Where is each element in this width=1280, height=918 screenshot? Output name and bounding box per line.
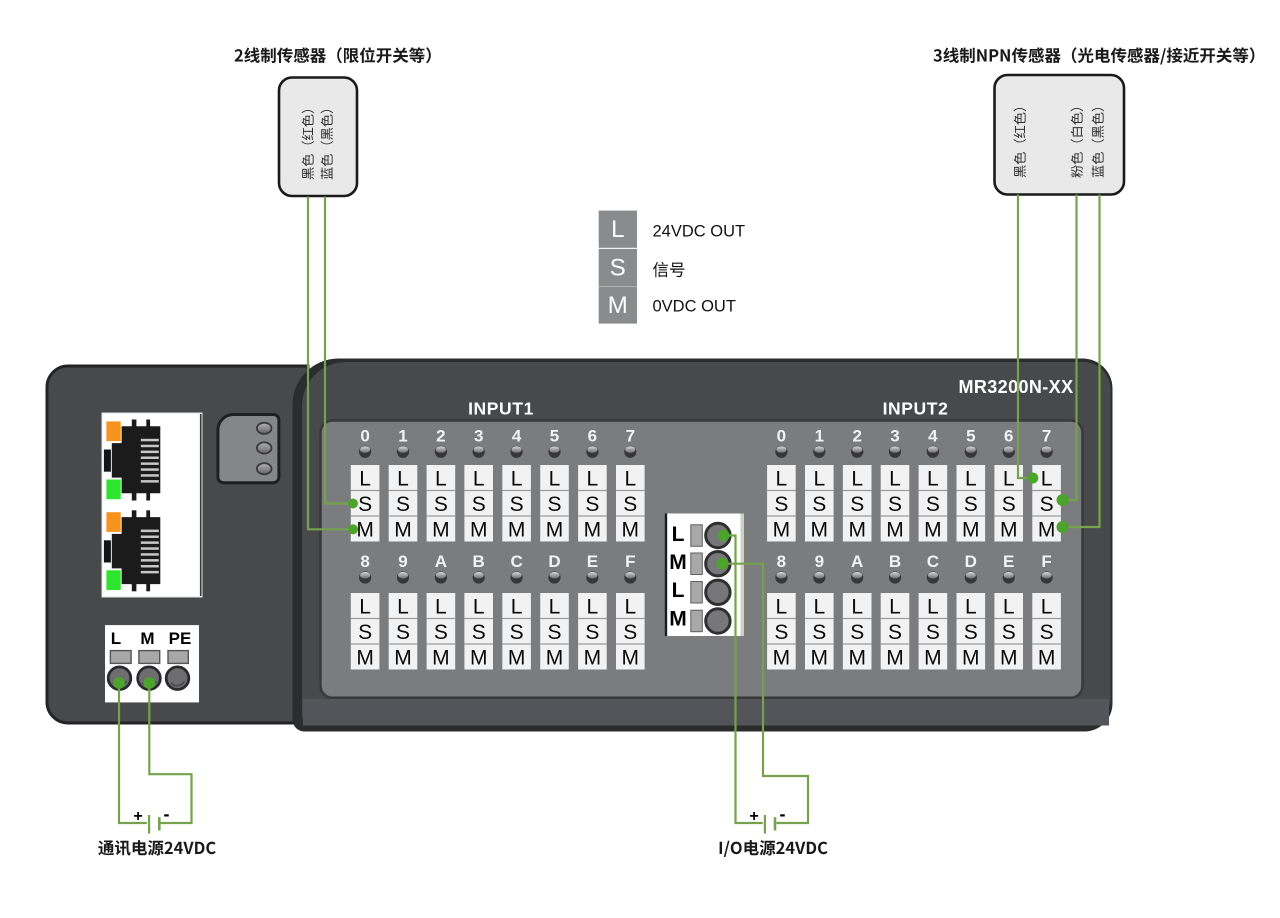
- svg-text:L: L: [511, 596, 523, 619]
- svg-text:C: C: [927, 552, 939, 571]
- svg-text:M: M: [811, 647, 829, 670]
- svg-text:E: E: [587, 552, 598, 571]
- svg-text:0: 0: [777, 427, 786, 446]
- svg-text:S: S: [888, 493, 902, 516]
- svg-text:M: M: [924, 647, 942, 670]
- svg-text:2: 2: [852, 427, 861, 446]
- svg-text:L: L: [435, 468, 447, 491]
- svg-text:A: A: [435, 552, 447, 571]
- svg-text:M: M: [508, 519, 526, 542]
- svg-text:S: S: [888, 621, 902, 644]
- svg-text:F: F: [1041, 552, 1051, 571]
- svg-text:S: S: [434, 493, 448, 516]
- svg-text:L: L: [473, 596, 485, 619]
- svg-text:L: L: [813, 468, 825, 491]
- svg-text:L: L: [1003, 468, 1015, 491]
- svg-text:L: L: [672, 579, 685, 602]
- svg-text:-: -: [164, 804, 170, 824]
- svg-text:S: S: [964, 493, 978, 516]
- svg-text:S: S: [585, 493, 599, 516]
- svg-text:2: 2: [436, 427, 445, 446]
- svg-text:D: D: [965, 552, 977, 571]
- svg-text:M: M: [886, 519, 904, 542]
- svg-text:S: S: [850, 493, 864, 516]
- svg-text:M: M: [470, 519, 488, 542]
- svg-text:3: 3: [890, 427, 899, 446]
- svg-text:L: L: [549, 468, 561, 491]
- svg-text:D: D: [548, 552, 560, 571]
- svg-text:4: 4: [928, 427, 938, 446]
- svg-text:M: M: [622, 647, 640, 670]
- svg-text:L: L: [927, 596, 939, 619]
- svg-text:S: S: [510, 621, 524, 644]
- svg-text:S: S: [1002, 493, 1016, 516]
- svg-text:M: M: [669, 551, 687, 574]
- svg-text:M: M: [356, 647, 374, 670]
- svg-text:6: 6: [588, 427, 597, 446]
- svg-text:L: L: [851, 468, 863, 491]
- svg-text:+: +: [133, 808, 142, 825]
- svg-text:M: M: [584, 519, 602, 542]
- svg-text:L: L: [965, 468, 977, 491]
- svg-text:S: S: [547, 621, 561, 644]
- svg-text:F: F: [625, 552, 635, 571]
- svg-text:B: B: [473, 552, 485, 571]
- svg-text:M: M: [848, 647, 866, 670]
- svg-text:INPUT2: INPUT2: [883, 399, 949, 419]
- svg-text:L: L: [813, 596, 825, 619]
- svg-text:S: S: [547, 493, 561, 516]
- svg-text:S: S: [850, 621, 864, 644]
- svg-text:S: S: [472, 621, 486, 644]
- svg-text:M: M: [924, 519, 942, 542]
- svg-text:1: 1: [815, 427, 824, 446]
- svg-text:9: 9: [815, 552, 824, 571]
- svg-text:M: M: [394, 647, 412, 670]
- svg-text:M: M: [508, 647, 526, 670]
- svg-text:L: L: [397, 468, 409, 491]
- svg-text:L: L: [1041, 596, 1053, 619]
- svg-text:L: L: [611, 216, 624, 243]
- svg-text:L: L: [359, 596, 371, 619]
- svg-text:L: L: [776, 468, 788, 491]
- svg-text:S: S: [774, 493, 788, 516]
- svg-text:S: S: [812, 493, 826, 516]
- svg-text:M: M: [432, 519, 450, 542]
- svg-text:7: 7: [626, 427, 635, 446]
- svg-text:M: M: [546, 519, 564, 542]
- svg-text:MR3200N-XX: MR3200N-XX: [958, 377, 1073, 397]
- svg-text:5: 5: [966, 427, 975, 446]
- svg-text:S: S: [396, 621, 410, 644]
- svg-text:M: M: [773, 647, 791, 670]
- svg-text:L: L: [965, 596, 977, 619]
- svg-text:M: M: [356, 519, 374, 542]
- svg-text:0VDC OUT: 0VDC OUT: [653, 298, 736, 316]
- svg-text:M: M: [962, 519, 980, 542]
- svg-text:M: M: [962, 647, 980, 670]
- svg-text:M: M: [432, 647, 450, 670]
- svg-text:S: S: [774, 621, 788, 644]
- svg-text:PE: PE: [169, 629, 192, 648]
- svg-text:L: L: [1003, 596, 1015, 619]
- svg-text:0: 0: [360, 427, 369, 446]
- svg-text:L: L: [776, 596, 788, 619]
- svg-text:9: 9: [398, 552, 407, 571]
- svg-text:S: S: [1040, 621, 1054, 644]
- svg-text:S: S: [623, 621, 637, 644]
- svg-text:S: S: [610, 254, 626, 281]
- svg-text:8: 8: [360, 552, 369, 571]
- svg-text:L: L: [624, 468, 636, 491]
- svg-text:L: L: [511, 468, 523, 491]
- svg-text:S: S: [964, 621, 978, 644]
- svg-text:S: S: [585, 621, 599, 644]
- svg-text:S: S: [396, 493, 410, 516]
- svg-text:E: E: [1003, 552, 1014, 571]
- svg-text:B: B: [889, 552, 901, 571]
- svg-text:L: L: [359, 468, 371, 491]
- svg-text:A: A: [851, 552, 863, 571]
- svg-text:-: -: [780, 804, 786, 824]
- svg-text:S: S: [434, 621, 448, 644]
- svg-text:C: C: [510, 552, 522, 571]
- svg-text:INPUT1: INPUT1: [468, 399, 534, 419]
- svg-text:4: 4: [512, 427, 522, 446]
- svg-text:7: 7: [1042, 427, 1051, 446]
- svg-text:M: M: [622, 519, 640, 542]
- svg-text:M: M: [608, 292, 628, 319]
- svg-text:M: M: [394, 519, 412, 542]
- svg-text:S: S: [1002, 621, 1016, 644]
- svg-text:M: M: [773, 519, 791, 542]
- svg-text:M: M: [546, 647, 564, 670]
- svg-text:M: M: [470, 647, 488, 670]
- svg-text:L: L: [851, 596, 863, 619]
- svg-text:S: S: [926, 621, 940, 644]
- svg-text:L: L: [889, 596, 901, 619]
- svg-text:S: S: [510, 493, 524, 516]
- svg-text:S: S: [472, 493, 486, 516]
- svg-text:L: L: [397, 596, 409, 619]
- svg-text:M: M: [848, 519, 866, 542]
- svg-text:5: 5: [550, 427, 559, 446]
- svg-text:S: S: [926, 493, 940, 516]
- svg-text:L: L: [473, 468, 485, 491]
- svg-text:M: M: [811, 519, 829, 542]
- svg-text:L: L: [624, 596, 636, 619]
- svg-text:L: L: [1041, 468, 1053, 491]
- svg-text:L: L: [927, 468, 939, 491]
- svg-text:L: L: [435, 596, 447, 619]
- svg-text:S: S: [1040, 493, 1054, 516]
- svg-text:L: L: [672, 523, 685, 546]
- svg-text:8: 8: [777, 552, 786, 571]
- svg-text:1: 1: [398, 427, 407, 446]
- svg-text:24VDC OUT: 24VDC OUT: [653, 223, 746, 241]
- svg-text:S: S: [358, 621, 372, 644]
- svg-text:L: L: [549, 596, 561, 619]
- svg-text:L: L: [889, 468, 901, 491]
- svg-text:S: S: [812, 621, 826, 644]
- svg-text:M: M: [1000, 519, 1018, 542]
- svg-text:6: 6: [1004, 427, 1013, 446]
- svg-text:3: 3: [474, 427, 483, 446]
- svg-text:S: S: [358, 493, 372, 516]
- svg-text:M: M: [1038, 519, 1056, 542]
- svg-text:M: M: [584, 647, 602, 670]
- svg-text:L: L: [111, 629, 121, 648]
- svg-text:M: M: [1000, 647, 1018, 670]
- svg-text:M: M: [886, 647, 904, 670]
- svg-text:M: M: [1038, 647, 1056, 670]
- svg-text:L: L: [587, 596, 599, 619]
- svg-text:M: M: [140, 629, 154, 648]
- svg-text:L: L: [587, 468, 599, 491]
- svg-text:+: +: [749, 808, 758, 825]
- svg-text:S: S: [623, 493, 637, 516]
- svg-text:M: M: [669, 607, 687, 630]
